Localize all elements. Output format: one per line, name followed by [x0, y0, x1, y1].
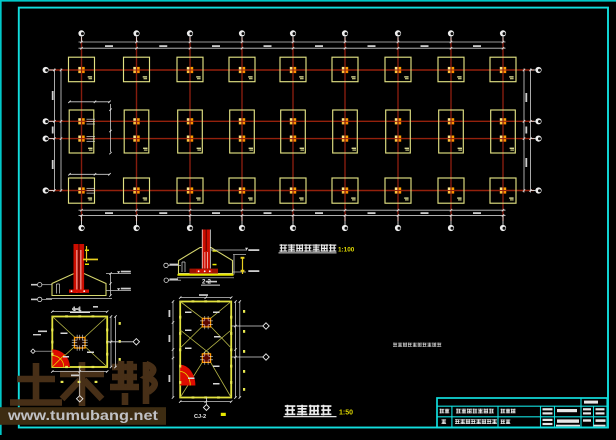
svg-text:1:50: 1:50: [339, 409, 353, 416]
svg-text:1:100: 1:100: [338, 246, 355, 253]
svg-text:www.tumubang.net: www.tumubang.net: [7, 408, 159, 423]
svg-text:CJ-2: CJ-2: [194, 414, 206, 420]
